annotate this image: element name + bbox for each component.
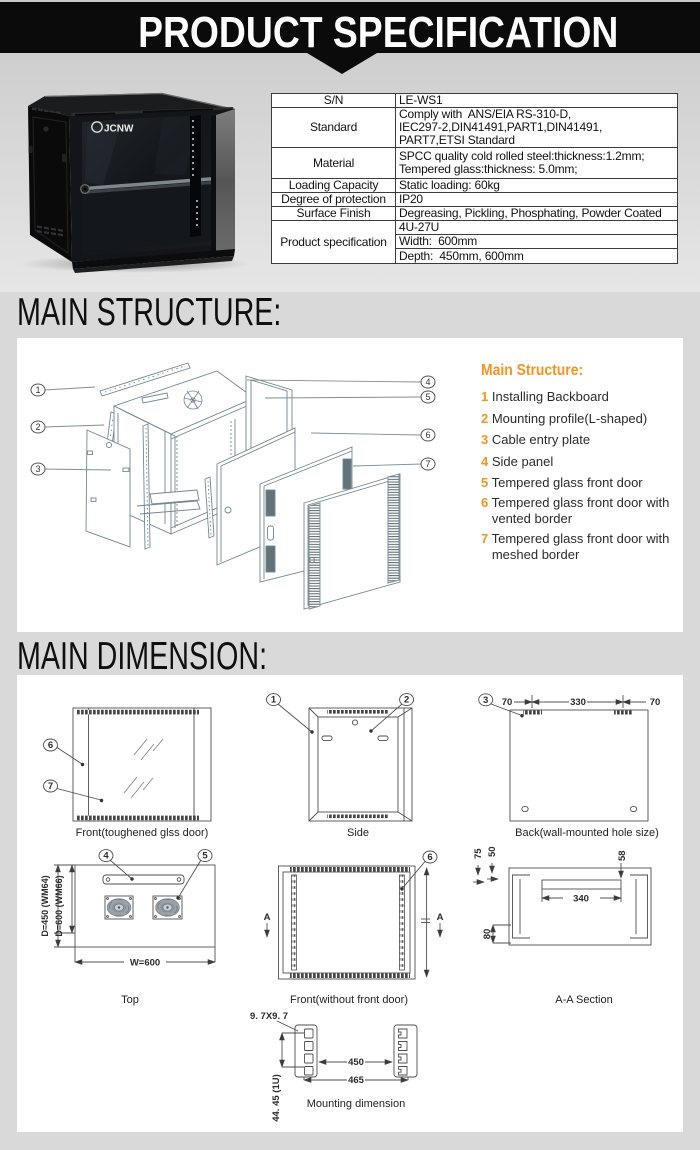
svg-text:465: 465 xyxy=(348,1075,365,1086)
svg-text:75: 75 xyxy=(473,848,484,859)
svg-text:D=450 (WM64): D=450 (WM64) xyxy=(40,875,50,936)
svg-text:7: 7 xyxy=(425,459,430,469)
svg-text:7: 7 xyxy=(48,781,53,792)
svg-text:330: 330 xyxy=(570,697,586,708)
svg-text:5: 5 xyxy=(425,392,430,402)
svg-text:4: 4 xyxy=(103,851,109,862)
svg-text:6: 6 xyxy=(425,430,430,440)
svg-text:1: 1 xyxy=(35,385,40,395)
svg-text:44. 45 (1U): 44. 45 (1U) xyxy=(271,1074,282,1122)
svg-text:70: 70 xyxy=(650,697,661,708)
svg-text:3: 3 xyxy=(35,464,40,474)
svg-text:450: 450 xyxy=(348,1057,364,1068)
svg-text:70: 70 xyxy=(502,697,513,708)
svg-text:Mounting dimension: Mounting dimension xyxy=(307,1098,405,1110)
svg-text:9. 7X9. 7: 9. 7X9. 7 xyxy=(250,1011,288,1022)
svg-text:4: 4 xyxy=(425,377,430,387)
svg-text:5: 5 xyxy=(202,851,208,862)
svg-text:A-A Section: A-A Section xyxy=(555,994,612,1006)
svg-text:Back(wall-mounted hole size): Back(wall-mounted hole size) xyxy=(515,827,659,839)
svg-text:3: 3 xyxy=(483,695,488,706)
svg-text:58: 58 xyxy=(617,850,628,861)
svg-text:A: A xyxy=(437,912,444,923)
svg-text:2: 2 xyxy=(35,422,40,432)
svg-text:W=600: W=600 xyxy=(130,958,160,969)
svg-text:D=600 (WM66): D=600 (WM66) xyxy=(54,875,64,936)
svg-text:JCNW: JCNW xyxy=(104,124,134,135)
svg-text:340: 340 xyxy=(573,894,589,905)
svg-text:6: 6 xyxy=(48,740,53,751)
svg-text:A: A xyxy=(264,912,271,923)
svg-text:50: 50 xyxy=(487,846,498,857)
svg-text:Side: Side xyxy=(347,827,369,839)
svg-text:Front(without front door): Front(without front door) xyxy=(290,994,408,1006)
svg-text:Front(toughened glss door): Front(toughened glss door) xyxy=(76,827,209,839)
svg-text:80: 80 xyxy=(482,929,493,940)
svg-text:2: 2 xyxy=(404,695,409,706)
svg-text:Top: Top xyxy=(121,994,139,1006)
svg-text:6: 6 xyxy=(427,852,432,863)
svg-text:1: 1 xyxy=(271,695,277,706)
